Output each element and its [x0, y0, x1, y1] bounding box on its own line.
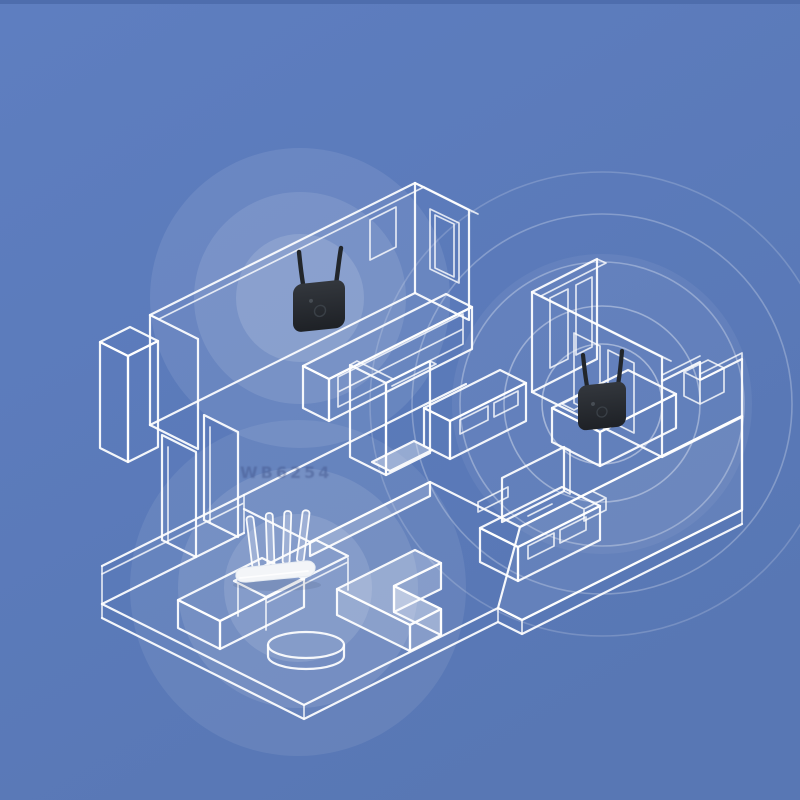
extender-body [578, 381, 626, 431]
background-top-edge [0, 0, 800, 4]
floorplan-canvas: WB6254 [0, 0, 800, 800]
wifi-coverage-illustration: WB6254 [0, 0, 800, 800]
watermark: WB6254 [240, 463, 332, 482]
